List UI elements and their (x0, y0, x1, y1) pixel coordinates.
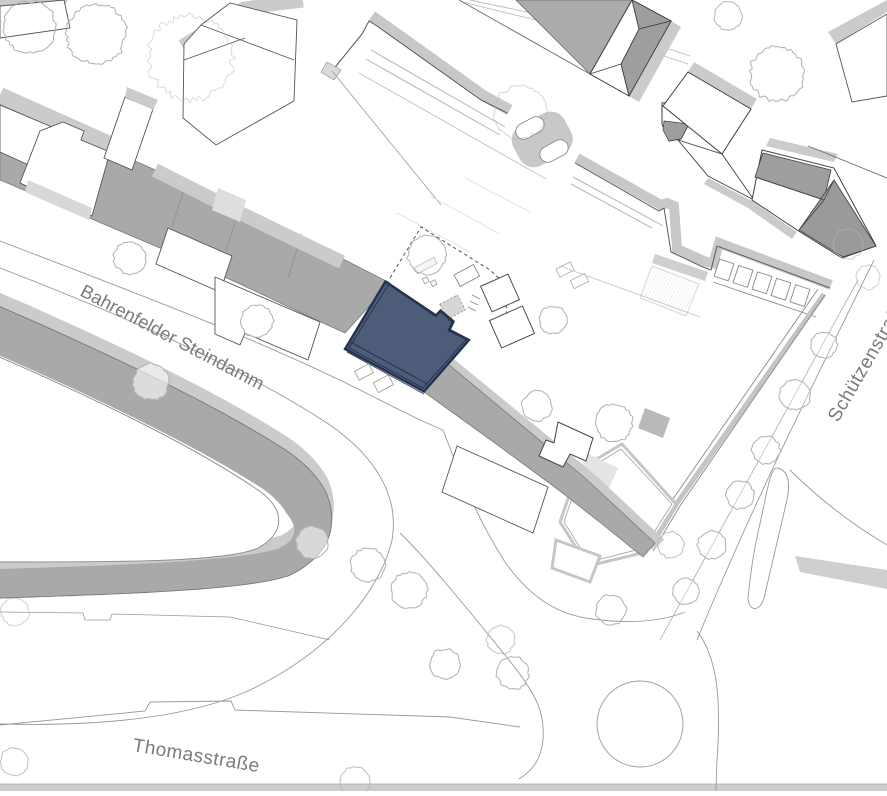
svg-text:Schützenstraße: Schützenstraße (824, 294, 887, 426)
svg-text:Thomasstraße: Thomasstraße (131, 735, 261, 777)
